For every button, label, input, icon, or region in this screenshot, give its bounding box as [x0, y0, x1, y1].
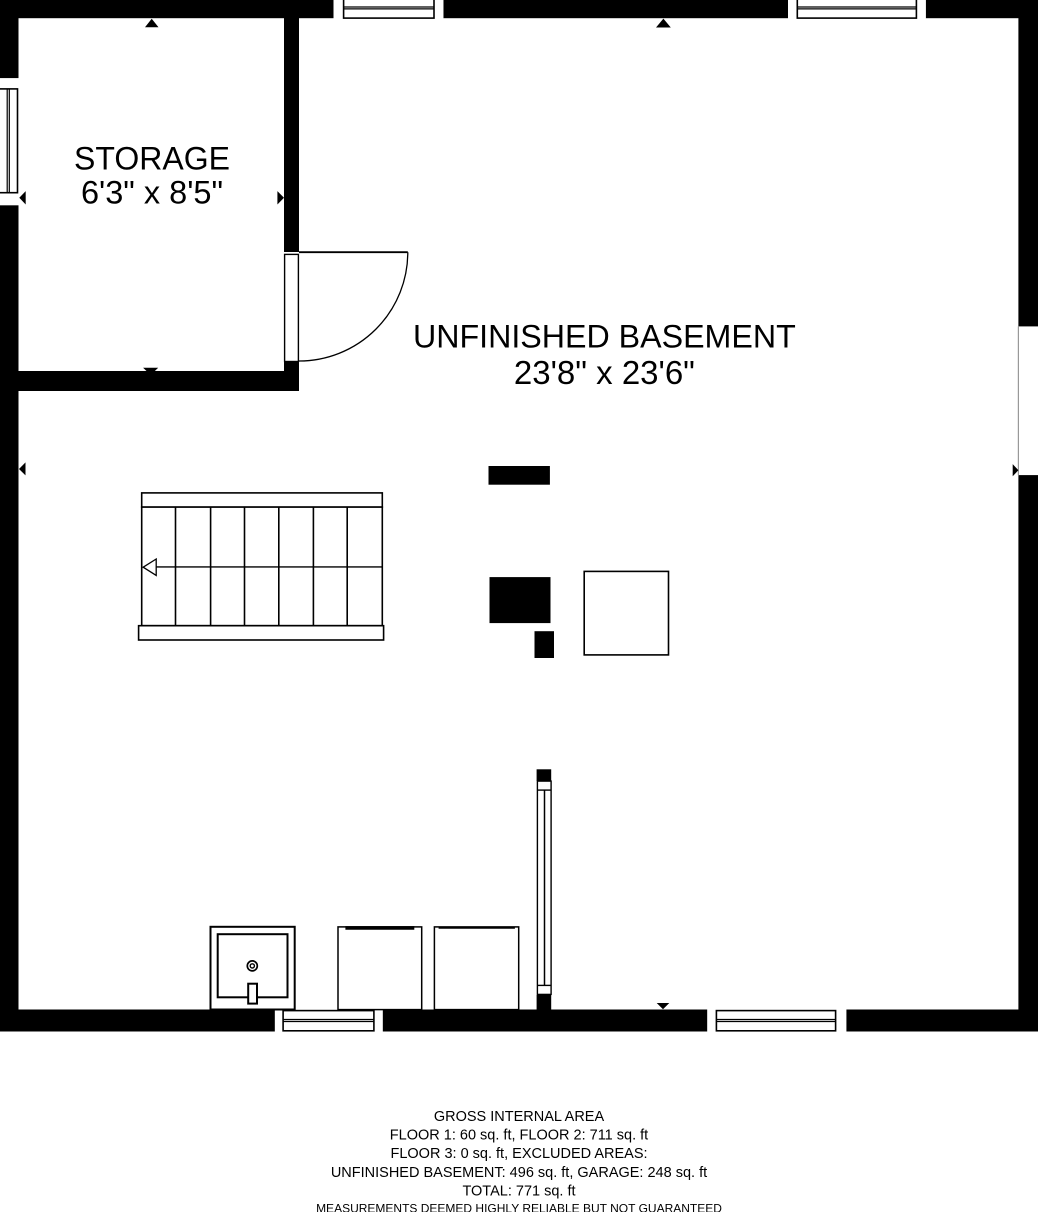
- svg-text:23'8" x 23'6": 23'8" x 23'6": [514, 354, 695, 391]
- svg-text:UNFINISHED BASEMENT: 496 sq. f: UNFINISHED BASEMENT: 496 sq. ft, GARAGE:…: [331, 1165, 707, 1181]
- svg-text:6'3" x 8'5": 6'3" x 8'5": [81, 175, 223, 211]
- svg-text:FLOOR 1: 60 sq. ft, FLOOR 2: 7: FLOOR 1: 60 sq. ft, FLOOR 2: 711 sq. ft: [390, 1128, 648, 1144]
- svg-text:TOTAL: 771 sq. ft: TOTAL: 771 sq. ft: [462, 1183, 575, 1199]
- svg-text:STORAGE: STORAGE: [74, 141, 230, 177]
- svg-text:UNFINISHED BASEMENT: UNFINISHED BASEMENT: [413, 319, 796, 355]
- svg-text:FLOOR 3: 0 sq. ft, EXCLUDED AR: FLOOR 3: 0 sq. ft, EXCLUDED AREAS:: [390, 1146, 647, 1162]
- svg-text:MEASUREMENTS DEEMED HIGHLY REL: MEASUREMENTS DEEMED HIGHLY RELIABLE BUT …: [316, 1202, 722, 1212]
- svg-text:GROSS INTERNAL AREA: GROSS INTERNAL AREA: [434, 1109, 605, 1125]
